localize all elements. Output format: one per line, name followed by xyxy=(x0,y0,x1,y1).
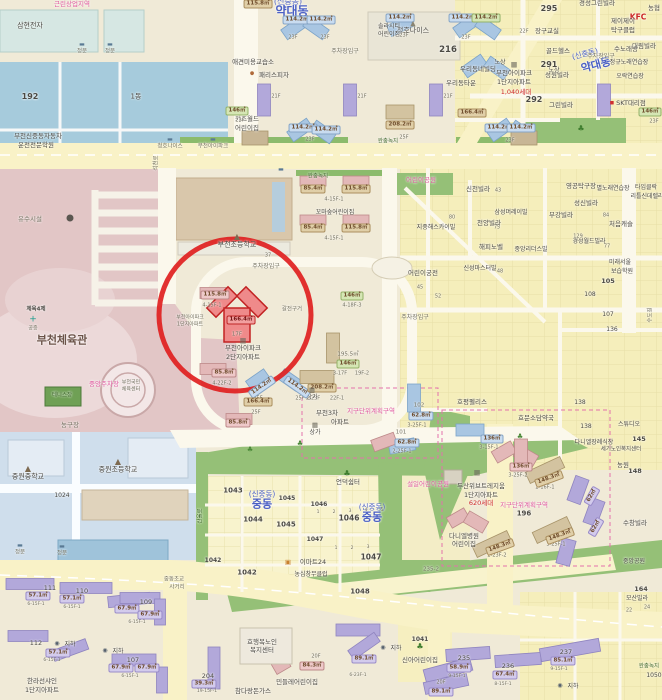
map-viewport[interactable]: (신중동)약대동(신중동)약대동(신중동)중동(신중동)중동근린상업지역지구단위… xyxy=(0,0,662,700)
commercial-building xyxy=(444,470,462,484)
map-base-layer xyxy=(0,0,662,700)
welfare-center-building xyxy=(240,628,292,664)
hill-area xyxy=(372,257,412,279)
